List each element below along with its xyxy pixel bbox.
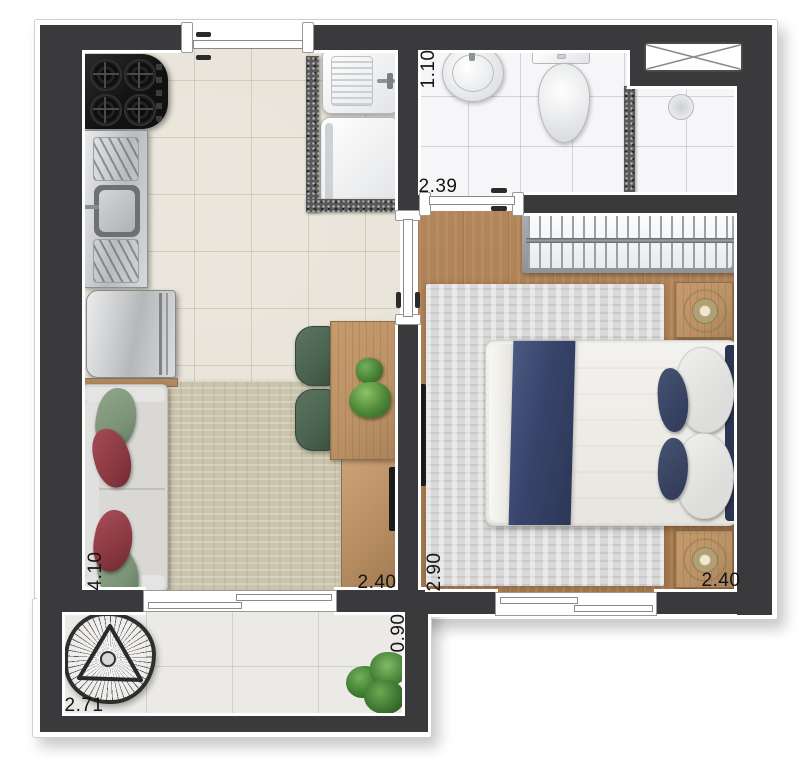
gas-burner-icon (124, 59, 156, 91)
bathroom-door (429, 196, 515, 205)
wall (398, 45, 418, 195)
shaft-x-icon (644, 42, 743, 72)
washing-machine (320, 117, 400, 207)
door-handle-icon (196, 55, 211, 60)
wall (40, 590, 143, 612)
door-handle-icon (415, 292, 420, 308)
dimension-label-bathroom-length: 2.39 (416, 177, 460, 197)
dining-chair (295, 389, 333, 451)
washer-door-edge (325, 123, 333, 201)
dimension-label-bedroom-length: 2.90 (425, 550, 445, 594)
entrance-door-jamb (181, 22, 193, 53)
dimension-label-bathroom-width: 1.10 (419, 47, 439, 91)
fridge (86, 290, 176, 378)
balcony-sliding-door (143, 590, 337, 612)
dimension-label-living-length: 4.10 (86, 549, 106, 593)
gas-burner-icon (90, 94, 122, 126)
fridge-hinge (166, 293, 168, 375)
stove (84, 54, 168, 129)
dimension-label-balcony-depth: 0.90 (389, 611, 409, 655)
window-pane (500, 597, 578, 604)
sofa-seat-split (99, 488, 165, 490)
dimension-label-living-width: 2.40 (355, 573, 399, 593)
shower-divider (624, 86, 635, 197)
wall (40, 716, 428, 732)
gas-burner-icon (90, 59, 122, 91)
wall (518, 195, 737, 213)
door-handle-icon (196, 32, 211, 37)
flush-button (557, 54, 566, 59)
dimension-label-balcony-width: 2.71 (62, 696, 106, 716)
drainboard (93, 137, 139, 181)
kitchen-counter (84, 130, 148, 288)
door-handle-icon (396, 292, 401, 308)
laundry-counter-granite (306, 199, 401, 212)
balcony-wire-chair (64, 612, 156, 704)
laundry-counter-granite (306, 56, 319, 212)
floor-plan: 1.10 2.39 4.10 2.40 2.90 2.40 0.90 2.71 (0, 0, 799, 768)
wall (40, 25, 82, 612)
bedroom-door (403, 219, 413, 317)
faucet-icon (387, 73, 393, 89)
nightstand (675, 282, 733, 338)
entrance-door-jamb (302, 22, 314, 53)
dimension-label-bedroom-width: 2.40 (699, 571, 743, 591)
washboard (331, 56, 373, 106)
wall (657, 592, 772, 614)
bed-throw-blanket (509, 341, 576, 525)
sink-bowl (99, 190, 135, 232)
balcony-plant (346, 652, 408, 714)
lamp-icon (692, 298, 718, 324)
sliding-door-pane (236, 594, 332, 601)
drainboard (93, 239, 139, 283)
stove-knobs (156, 62, 162, 122)
table-plant (349, 382, 391, 418)
wardrobe-rack (522, 209, 738, 273)
kitchen-sink (94, 185, 140, 237)
wall (337, 590, 425, 612)
wall (418, 592, 495, 614)
bedroom-window (495, 592, 657, 616)
shower-head-icon (668, 94, 694, 120)
wall (40, 612, 62, 732)
sliding-door-pane (148, 602, 242, 609)
wardrobe-rail (526, 238, 734, 243)
door-handle-icon (491, 188, 507, 193)
wall (398, 318, 418, 592)
entrance-door (193, 40, 303, 49)
plant-leaves (364, 680, 404, 714)
fridge-hinge (159, 293, 162, 375)
window-pane (574, 605, 653, 612)
wall (737, 25, 772, 615)
gas-burner-icon (124, 94, 156, 126)
door-handle-icon (491, 206, 507, 211)
laundry-sink (322, 48, 399, 114)
dining-chair (295, 326, 333, 386)
